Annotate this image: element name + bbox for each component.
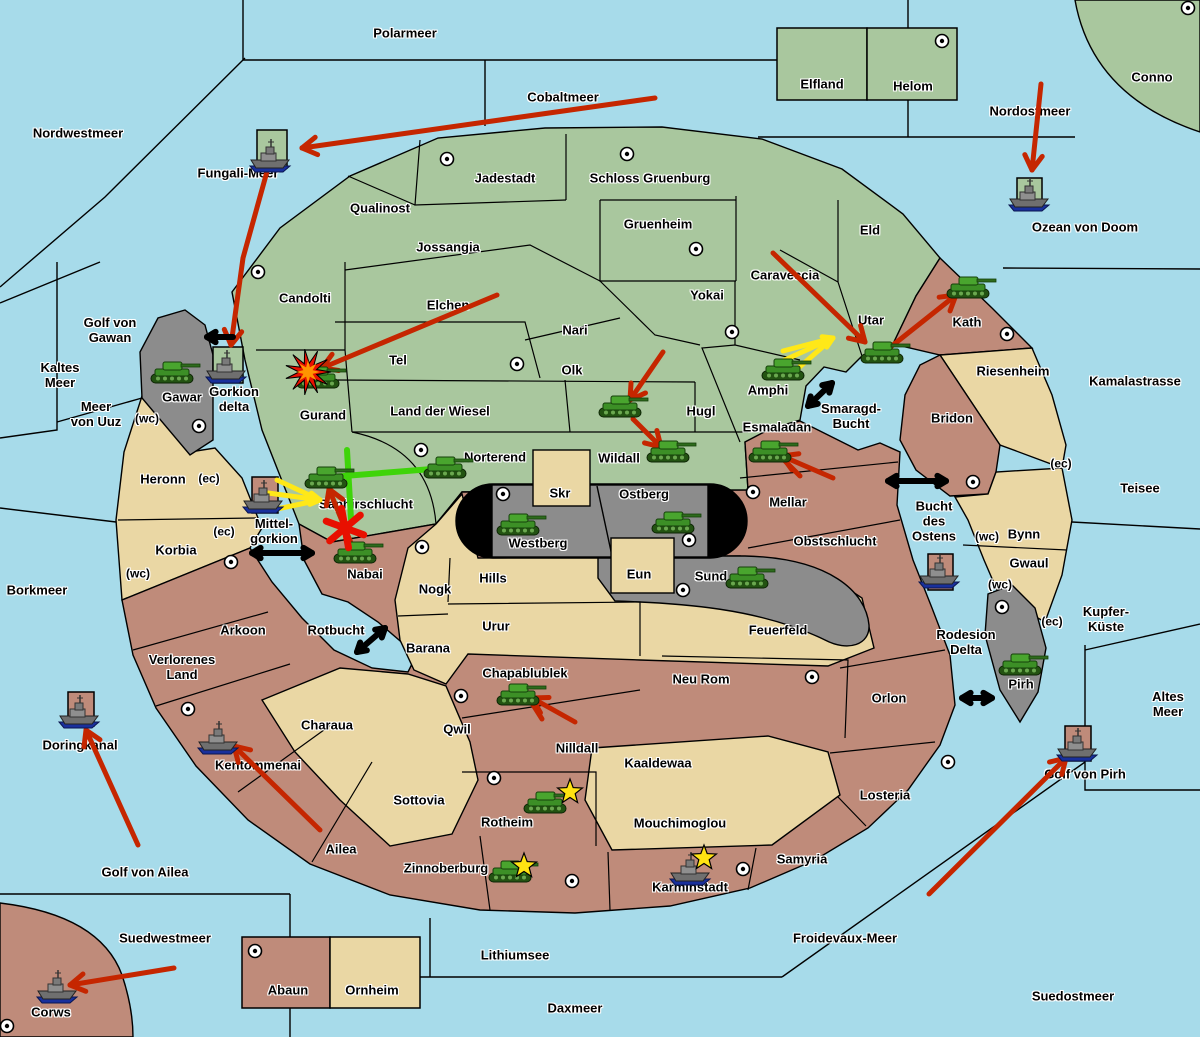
- region-label[interactable]: Qualinost: [350, 201, 410, 216]
- region-label[interactable]: Corws: [31, 1005, 71, 1020]
- sea-label[interactable]: Golf von Ailea: [102, 865, 189, 880]
- sea-label[interactable]: Cobaltmeer: [527, 90, 599, 105]
- region-label[interactable]: Hills: [479, 571, 506, 586]
- region-label[interactable]: Nabai: [347, 567, 382, 582]
- region-label[interactable]: Nilldall: [556, 741, 599, 756]
- coast-tag: (ec): [213, 525, 234, 540]
- region-label[interactable]: Tel: [389, 353, 407, 368]
- sea-label[interactable]: BuchtdesOstens: [912, 499, 956, 544]
- region-label[interactable]: Helom: [893, 79, 933, 94]
- region-label[interactable]: Yokai: [690, 288, 724, 303]
- sea-label[interactable]: Nordostmeer: [990, 104, 1071, 119]
- region-label[interactable]: Arkoon: [220, 623, 266, 638]
- region-label[interactable]: Esmaladan: [743, 420, 812, 435]
- region-label[interactable]: Losteria: [860, 788, 911, 803]
- sea-label[interactable]: Lithiumsee: [481, 948, 550, 963]
- sea-label[interactable]: Kamalastrasse: [1089, 374, 1181, 389]
- coast-tag: (wc): [988, 578, 1012, 593]
- region-label[interactable]: Korbia: [155, 543, 196, 558]
- region-label[interactable]: VerlorenesLand: [149, 652, 216, 682]
- sea-label[interactable]: Kupfer-Küste: [1083, 604, 1129, 634]
- sea-label[interactable]: Meervon Uuz: [71, 399, 122, 429]
- region-label[interactable]: Saphirschlucht: [319, 497, 413, 512]
- region-label[interactable]: Gorkiondelta: [209, 384, 259, 414]
- region-label[interactable]: Mouchimoglou: [634, 816, 726, 831]
- sea-label[interactable]: Daxmeer: [548, 1001, 603, 1016]
- sea-label[interactable]: Fungali-Meer: [198, 166, 279, 181]
- sea-label[interactable]: RodesionDelta: [936, 627, 995, 657]
- region-label[interactable]: Jadestadt: [475, 171, 536, 186]
- region-label[interactable]: Westberg: [509, 536, 568, 551]
- sea-label[interactable]: Froidevaux-Meer: [793, 931, 897, 946]
- region-label[interactable]: Zinnoberburg: [404, 861, 489, 876]
- sea-label[interactable]: Polarmeer: [373, 26, 437, 41]
- region-label[interactable]: Gurand: [300, 408, 346, 423]
- region-label[interactable]: Kath: [953, 315, 982, 330]
- region-label[interactable]: Ostberg: [619, 487, 669, 502]
- region-label[interactable]: Neu Rom: [672, 672, 729, 687]
- coast-tag: (wc): [135, 412, 159, 427]
- region-label[interactable]: Feuerfeld: [749, 623, 808, 638]
- coast-tag: (ec): [1050, 457, 1071, 472]
- region-label[interactable]: Eld: [860, 223, 880, 238]
- region-label[interactable]: Sund: [695, 569, 728, 584]
- region-label[interactable]: Hugl: [687, 404, 716, 419]
- region-label[interactable]: Bridon: [931, 411, 973, 426]
- region-label[interactable]: Urur: [482, 619, 509, 634]
- sea-label[interactable]: Nordwestmeer: [33, 126, 123, 141]
- map-labels: PolarmeerNordwestmeerCobaltmeerFungali-M…: [0, 0, 1200, 1037]
- region-label[interactable]: Wildall: [598, 451, 640, 466]
- region-label[interactable]: Qwil: [443, 722, 470, 737]
- region-label[interactable]: Karminstadt: [652, 880, 728, 895]
- region-label[interactable]: Elfland: [800, 77, 843, 92]
- region-label[interactable]: Norterend: [464, 450, 526, 465]
- region-label[interactable]: Kaaldewaa: [624, 756, 691, 771]
- region-label[interactable]: Jossangia: [416, 240, 480, 255]
- coast-tag: (ec): [198, 472, 219, 487]
- region-label[interactable]: Land der Wiesel: [390, 404, 490, 419]
- region-label[interactable]: Rotheim: [481, 815, 533, 830]
- region-label[interactable]: Nari: [562, 323, 587, 338]
- region-label[interactable]: Eun: [627, 567, 652, 582]
- region-label[interactable]: Mellar: [769, 495, 807, 510]
- region-label[interactable]: Heronn: [140, 472, 186, 487]
- region-label[interactable]: Utar: [858, 313, 884, 328]
- region-label[interactable]: Charaua: [301, 718, 353, 733]
- region-label[interactable]: Riesenheim: [977, 364, 1050, 379]
- sea-label[interactable]: Mittel-gorkion: [250, 516, 298, 546]
- sea-label[interactable]: Ozean von Doom: [1032, 220, 1138, 235]
- coast-tag: (ec): [1041, 615, 1062, 630]
- region-label[interactable]: Bynn: [1008, 527, 1041, 542]
- region-label[interactable]: Sottovia: [393, 793, 444, 808]
- region-label[interactable]: Nogk: [419, 582, 452, 597]
- sea-label[interactable]: Golf von Pirh: [1044, 767, 1126, 782]
- region-label[interactable]: Kentommenai: [215, 758, 301, 773]
- region-label[interactable]: Skr: [550, 486, 571, 501]
- sea-label[interactable]: Borkmeer: [7, 583, 68, 598]
- region-label[interactable]: Pirh: [1008, 677, 1033, 692]
- region-label[interactable]: Amphi: [748, 383, 788, 398]
- region-label[interactable]: Candolti: [279, 291, 331, 306]
- region-label[interactable]: Ornheim: [345, 983, 398, 998]
- sea-label[interactable]: Suedwestmeer: [119, 931, 211, 946]
- region-label[interactable]: Elchen: [427, 298, 470, 313]
- sea-label[interactable]: KaltesMeer: [40, 360, 79, 390]
- region-label[interactable]: Schloss Gruenburg: [590, 171, 711, 186]
- region-label[interactable]: Samyria: [777, 852, 828, 867]
- region-label[interactable]: Obstschlucht: [793, 534, 876, 549]
- sea-label[interactable]: Golf vonGawan: [84, 315, 137, 345]
- sea-label[interactable]: Suedostmeer: [1032, 989, 1114, 1004]
- coast-tag: (wc): [126, 567, 150, 582]
- region-label[interactable]: Orlon: [872, 691, 907, 706]
- region-label[interactable]: Olk: [562, 363, 583, 378]
- region-label[interactable]: Gruenheim: [624, 217, 693, 232]
- region-label[interactable]: Chapablublek: [482, 666, 567, 681]
- sea-label[interactable]: AltesMeer: [1152, 689, 1184, 719]
- game-map: PolarmeerNordwestmeerCobaltmeerFungali-M…: [0, 0, 1200, 1037]
- region-label[interactable]: Abaun: [268, 983, 308, 998]
- region-label[interactable]: Conno: [1131, 70, 1172, 85]
- region-label[interactable]: Gwaul: [1009, 556, 1048, 571]
- sea-label[interactable]: Smaragd-Bucht: [821, 401, 881, 431]
- region-label[interactable]: Ailea: [325, 842, 356, 857]
- region-label[interactable]: Gawar: [162, 390, 202, 405]
- sea-label[interactable]: Teisee: [1120, 481, 1160, 496]
- sea-label[interactable]: Rotbucht: [307, 623, 364, 638]
- region-label[interactable]: Caraveccia: [751, 268, 820, 283]
- coast-tag: (wc): [975, 530, 999, 545]
- region-label[interactable]: Barana: [406, 641, 450, 656]
- sea-label[interactable]: Doringkanal: [42, 738, 117, 753]
